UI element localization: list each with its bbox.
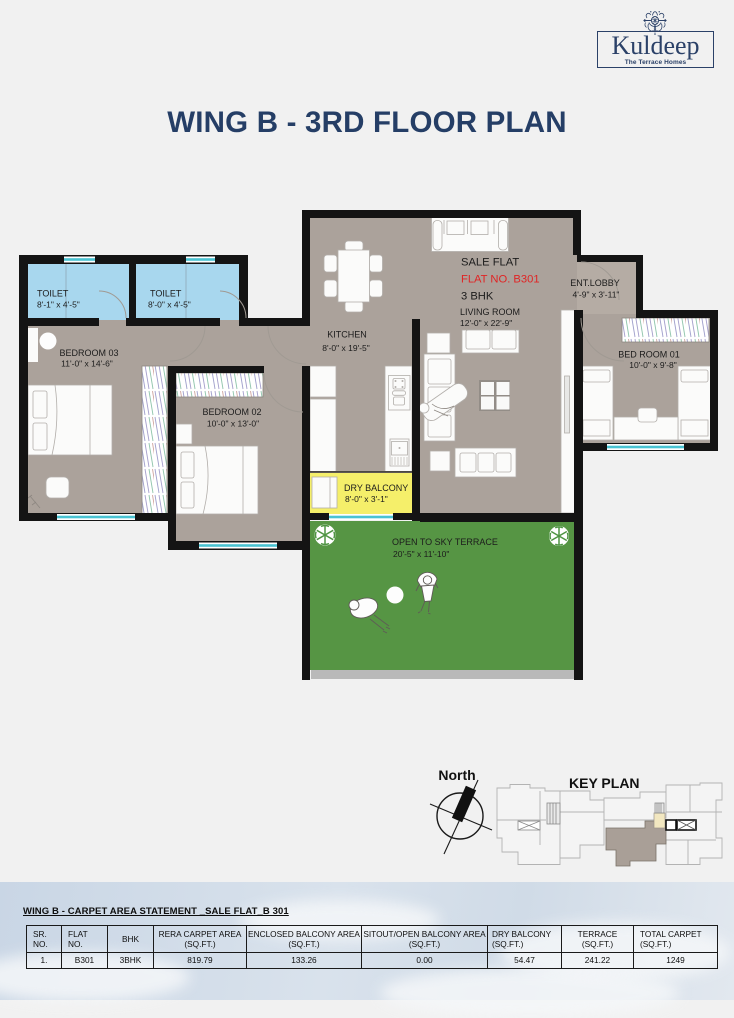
svg-text:8'-0" x 4'-5": 8'-0" x 4'-5" [148, 300, 191, 310]
svg-text:North: North [438, 767, 475, 783]
svg-text:ENT.LOBBY: ENT.LOBBY [570, 278, 620, 288]
svg-text:SALE FLAT: SALE FLAT [461, 257, 519, 269]
svg-text:DRY BALCONY: DRY BALCONY [344, 483, 408, 493]
svg-text:10'-0" x 9'-8": 10'-0" x 9'-8" [629, 360, 677, 370]
svg-text:11'-0" x 14'-6": 11'-0" x 14'-6" [61, 359, 113, 369]
svg-text:4'-9" x 3'-11": 4'-9" x 3'-11" [573, 290, 620, 300]
svg-text:10'-0" x 13'-0": 10'-0" x 13'-0" [207, 419, 259, 429]
svg-text:FLAT NO. B301: FLAT NO. B301 [461, 274, 540, 286]
svg-text:BED ROOM 01: BED ROOM 01 [618, 350, 680, 360]
svg-text:BEDROOM 02: BEDROOM 02 [202, 407, 261, 417]
svg-text:8'-0" x 3'-1": 8'-0" x 3'-1" [345, 494, 388, 504]
svg-text:LIVING ROOM: LIVING ROOM [460, 307, 520, 317]
svg-text:12'-0" x 22'-9": 12'-0" x 22'-9" [460, 318, 512, 328]
svg-text:3 BHK: 3 BHK [461, 291, 494, 303]
svg-text:8'-1" x 4'-5": 8'-1" x 4'-5" [37, 300, 80, 310]
svg-text:TOILET: TOILET [150, 289, 182, 299]
svg-text:20'-5" x 11'-10": 20'-5" x 11'-10" [393, 549, 449, 559]
svg-text:BEDROOM 03: BEDROOM 03 [59, 348, 118, 358]
svg-text:KITCHEN: KITCHEN [327, 330, 367, 340]
svg-text:TOILET: TOILET [37, 289, 69, 299]
svg-text:OPEN TO SKY TERRACE: OPEN TO SKY TERRACE [392, 537, 498, 547]
svg-text:8'-0" x 19'-5": 8'-0" x 19'-5" [322, 343, 370, 353]
svg-text:KEY PLAN: KEY PLAN [569, 775, 640, 791]
